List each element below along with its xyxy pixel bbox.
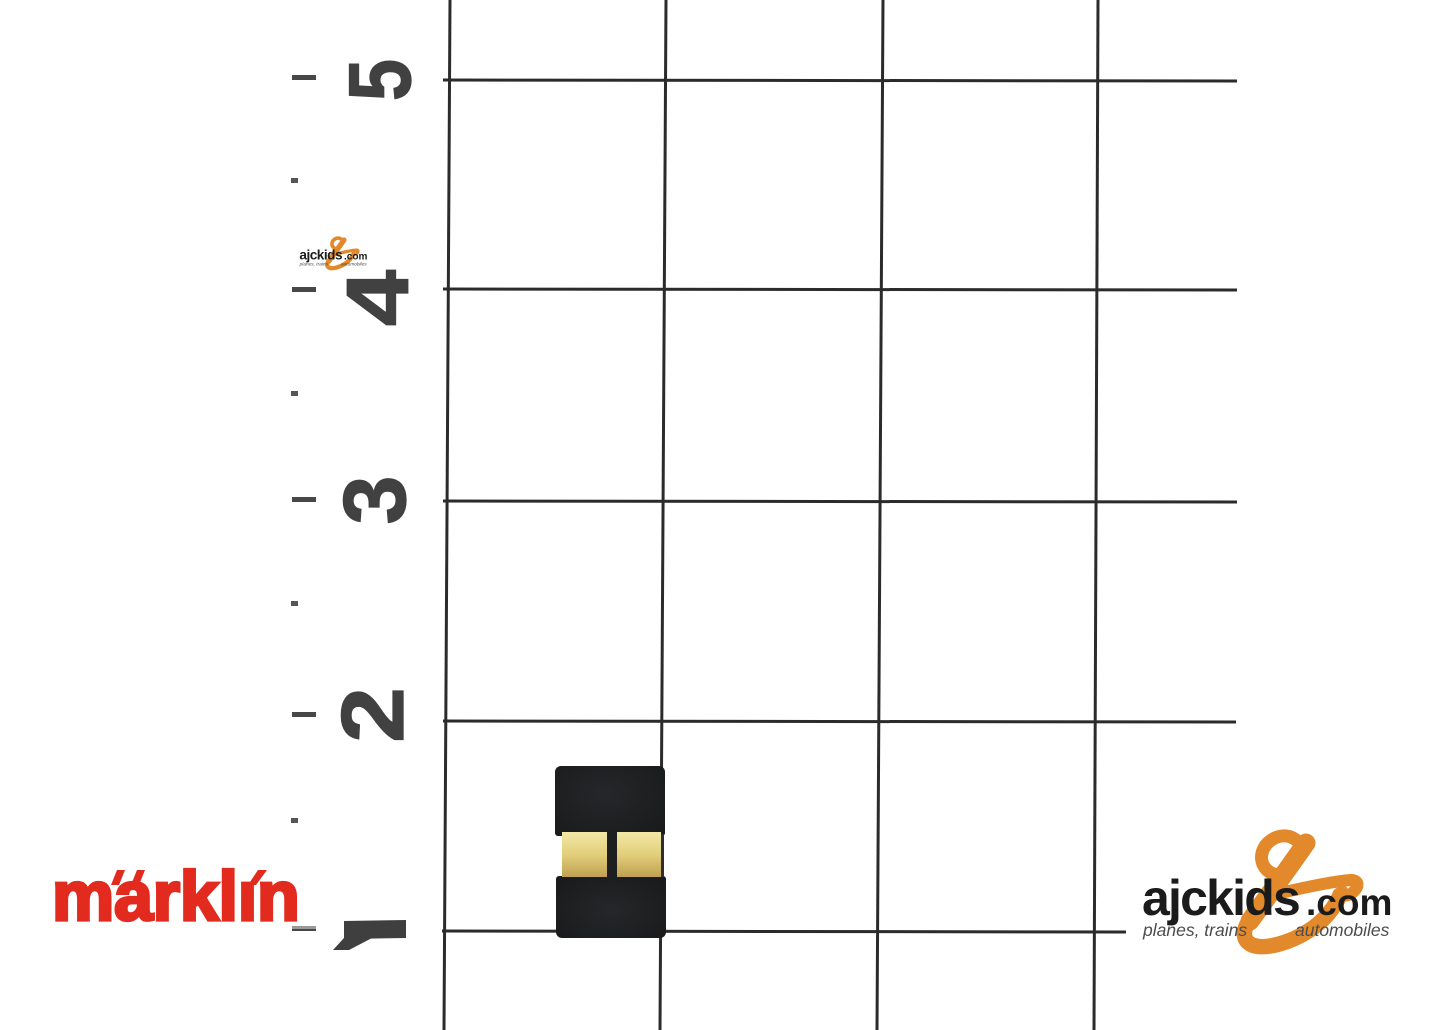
svg-text:ajckids: ajckids — [299, 248, 342, 263]
svg-text:automobiles: automobiles — [1295, 920, 1390, 940]
svg-text:planes, trains: planes, trains — [1142, 920, 1247, 940]
svg-text:planes, trains: planes, trains — [299, 261, 329, 267]
svg-text:.com: .com — [1306, 882, 1392, 923]
svg-text:ajckids: ajckids — [1142, 870, 1299, 926]
svg-text:marklın: marklın — [52, 857, 300, 935]
svg-text:.com: .com — [344, 252, 368, 263]
svg-text:automobiles: automobiles — [341, 261, 367, 267]
